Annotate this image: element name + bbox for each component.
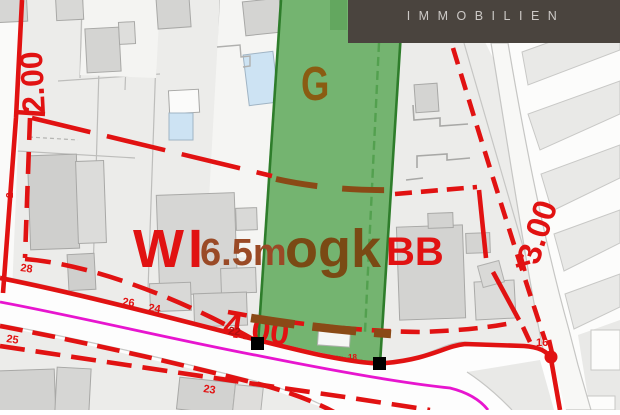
svg-text:2: 2 [5, 192, 16, 198]
svg-text:BB: BB [386, 230, 444, 274]
svg-text:ogk: ogk [285, 219, 382, 279]
svg-text:6.5m: 6.5m [200, 232, 287, 274]
svg-text:26: 26 [122, 296, 136, 310]
svg-text:23: 23 [203, 383, 217, 397]
svg-text:22: 22 [228, 325, 242, 339]
svg-text:IMMOBILIEN: IMMOBILIEN [407, 9, 566, 23]
svg-text:2.00: 2.00 [13, 50, 52, 114]
svg-text:28: 28 [20, 262, 34, 276]
svg-text:16: 16 [536, 337, 548, 349]
svg-text:25: 25 [6, 333, 20, 347]
svg-text:G: G [301, 57, 329, 111]
svg-text:18: 18 [348, 353, 357, 362]
svg-text:WI: WI [133, 219, 207, 279]
